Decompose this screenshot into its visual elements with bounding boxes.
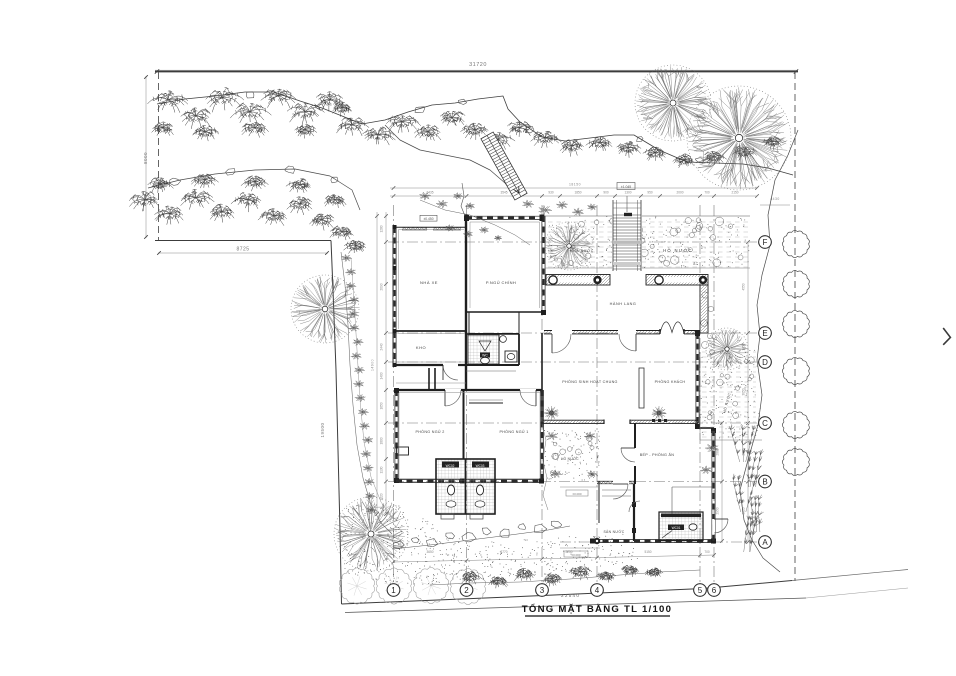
- svg-text:2000: 2000: [676, 191, 683, 195]
- svg-text:2440: 2440: [380, 343, 384, 350]
- svg-text:700: 700: [704, 550, 710, 554]
- svg-text:HỒ NƯỚC: HỒ NƯỚC: [663, 248, 693, 253]
- svg-text:1130: 1130: [380, 466, 384, 473]
- svg-text:950: 950: [647, 191, 653, 195]
- svg-text:3650: 3650: [426, 550, 433, 554]
- svg-text:BẾP - PHÒNG ĂN: BẾP - PHÒNG ĂN: [640, 452, 674, 457]
- svg-text:3545: 3545: [500, 191, 507, 195]
- svg-text:2950: 2950: [716, 507, 720, 514]
- svg-text:19500: 19500: [320, 422, 325, 437]
- svg-text:P.NGỦ CHÍNH: P.NGỦ CHÍNH: [486, 280, 516, 285]
- svg-text:1650: 1650: [380, 402, 384, 409]
- svg-text:PHÒNG NGỦ 1: PHÒNG NGỦ 1: [499, 429, 528, 434]
- svg-text:KHO: KHO: [416, 345, 426, 350]
- svg-text:2090: 2090: [380, 283, 384, 290]
- svg-text:TỔNG MẶT BẰNG TL 1/100: TỔNG MẶT BẰNG TL 1/100: [522, 603, 672, 615]
- svg-text:1850: 1850: [574, 191, 581, 195]
- svg-text:D: D: [762, 358, 768, 367]
- svg-text:4550: 4550: [742, 283, 746, 290]
- svg-text:1: 1: [391, 586, 396, 595]
- svg-text:HÀNH LANG: HÀNH LANG: [610, 302, 637, 306]
- svg-text:1400: 1400: [380, 372, 384, 379]
- svg-text:C: C: [762, 419, 768, 428]
- svg-text:±0.000: ±0.000: [572, 492, 581, 496]
- svg-text:A: A: [762, 538, 768, 547]
- svg-text:4: 4: [595, 586, 600, 595]
- svg-text:2: 2: [464, 586, 469, 595]
- svg-text:PHÒNG KHÁCH: PHÒNG KHÁCH: [655, 379, 686, 384]
- svg-text:E: E: [762, 329, 767, 338]
- svg-text:900: 900: [603, 191, 609, 195]
- svg-text:2150: 2150: [731, 191, 738, 195]
- svg-text:700: 700: [704, 191, 710, 195]
- svg-text:HỒ NƯỚC: HỒ NƯỚC: [561, 456, 579, 461]
- svg-text:WC01: WC01: [672, 526, 681, 530]
- svg-text:±0.450: ±0.450: [423, 217, 433, 221]
- svg-text:2 2 5 4 0: 2 2 5 4 0: [561, 593, 579, 598]
- svg-text:WC02: WC02: [446, 464, 455, 468]
- svg-text:3435: 3435: [426, 191, 433, 195]
- svg-text:±0.000: ±0.000: [571, 553, 580, 557]
- svg-text:18150: 18150: [569, 183, 581, 187]
- svg-text:±1.045: ±1.045: [621, 185, 631, 189]
- svg-text:PHÒNG SINH HOẠT CHUNG: PHÒNG SINH HOẠT CHUNG: [562, 379, 617, 384]
- svg-text:NHÀ XE: NHÀ XE: [420, 280, 438, 285]
- svg-text:1800: 1800: [380, 437, 384, 444]
- svg-text:PHÒNG NGỦ 2: PHÒNG NGỦ 2: [415, 429, 444, 434]
- svg-text:SÂN NƯỚC: SÂN NƯỚC: [603, 529, 624, 534]
- svg-text:5: 5: [698, 586, 703, 595]
- svg-text:5150: 5150: [644, 550, 651, 554]
- svg-text:1280: 1280: [380, 225, 384, 232]
- svg-text:14900: 14900: [371, 359, 375, 371]
- svg-text:1300: 1300: [624, 191, 631, 195]
- svg-text:31720: 31720: [469, 62, 487, 68]
- svg-text:WC03: WC03: [476, 464, 485, 468]
- svg-text:8000: 8000: [143, 152, 148, 164]
- svg-text:F: F: [763, 238, 768, 247]
- svg-text:B: B: [762, 477, 767, 486]
- svg-text:NHÀ NƯỚC: NHÀ NƯỚC: [570, 248, 594, 253]
- svg-text:3: 3: [540, 586, 545, 595]
- svg-text:6: 6: [712, 586, 717, 595]
- svg-text:8725: 8725: [236, 247, 249, 253]
- svg-text:930: 930: [548, 191, 554, 195]
